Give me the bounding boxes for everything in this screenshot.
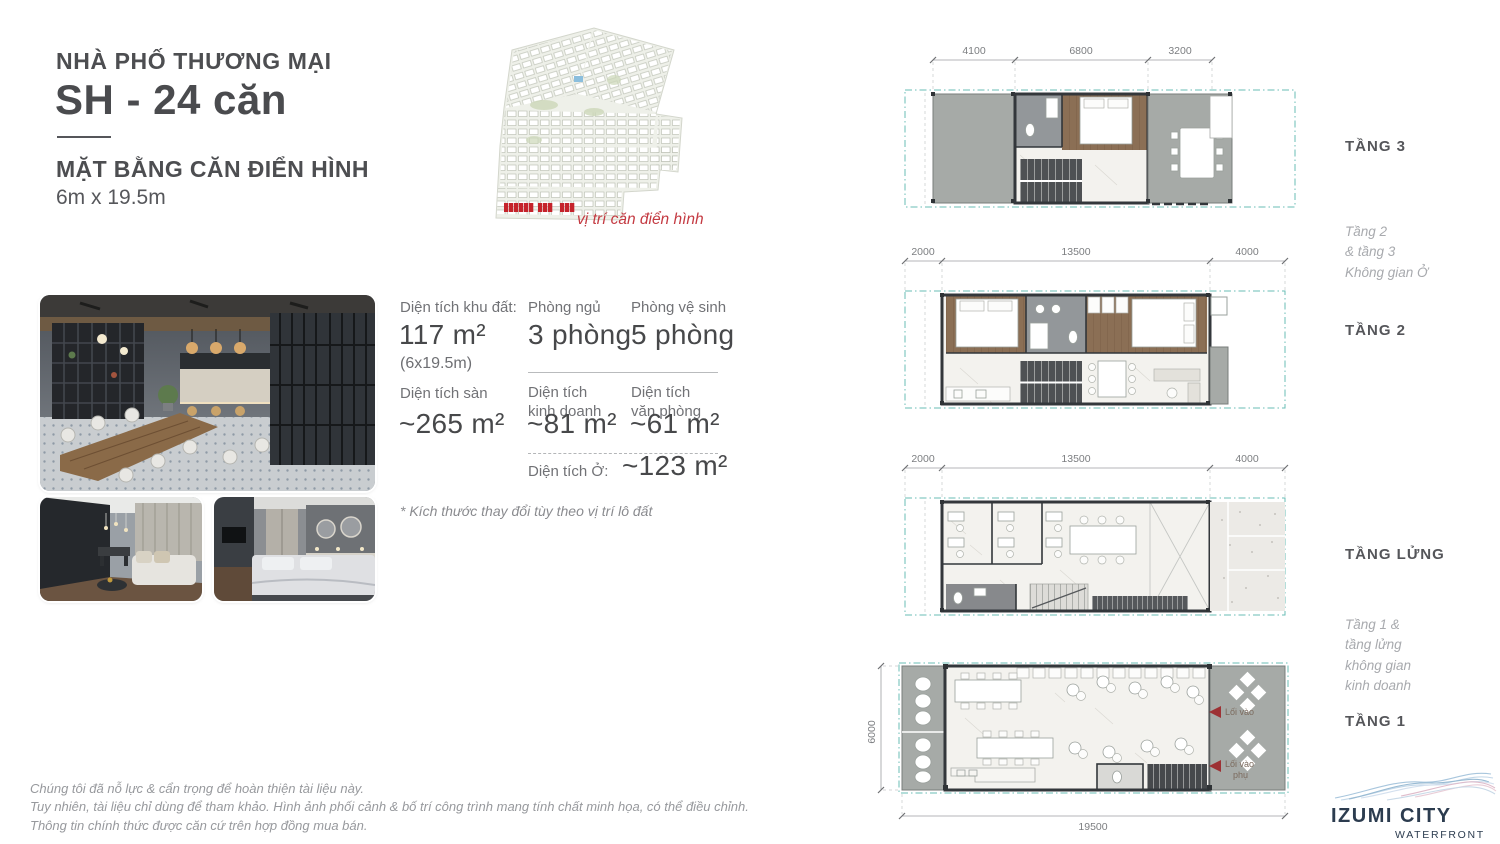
dim-label: 6000: [866, 720, 878, 744]
dim-label: 6800: [1069, 45, 1093, 57]
logo-name: IZUMI CITY: [1331, 805, 1497, 828]
footer-disclaimer: Chúng tôi đã nỗ lực & cẩn trọng để hoàn …: [30, 780, 749, 835]
stats-divider: [528, 372, 718, 373]
dim-label: 19500: [1078, 821, 1107, 833]
floor-note-upper: Tầng 2 & tầng 3 Không gian Ở: [1345, 222, 1428, 283]
dim-label: 2000: [911, 453, 935, 465]
logo-wave-icon: [1331, 758, 1497, 804]
dim-label: 13500: [1061, 246, 1090, 258]
floor-label-tang-2: TẦNG 2: [1345, 322, 1406, 339]
living-area-value: ~123 m²: [622, 450, 728, 482]
floor-plan-tang-1: 6000 19500: [865, 648, 1325, 844]
dimension-note: * Kích thước thay đổi tùy theo vị trí lô…: [400, 503, 652, 519]
land-area-sub: (6x19.5m): [400, 355, 472, 373]
izumi-city-logo: IZUMI CITY WATERFRONT COMMUNITY: [1331, 758, 1497, 844]
land-area-label: Diện tích khu đất:: [400, 299, 517, 316]
bathrooms-value: 5 phòng: [631, 319, 734, 351]
floor-label-tang-1: TẦNG 1: [1345, 713, 1406, 730]
dim-label: 13500: [1061, 453, 1090, 465]
site-plan-map: [474, 20, 726, 232]
interior-photo-living: [40, 497, 202, 601]
business-area-value: ~81 m²: [527, 408, 617, 440]
interior-photo-cafe: [40, 295, 375, 491]
footer-line-3: Thông tin chính thức được căn cứ trên hợ…: [30, 817, 749, 835]
dim-label: 4100: [962, 45, 986, 57]
entrance-side-label-2: phụ: [1233, 770, 1248, 780]
bedrooms-value: 3 phòng: [528, 319, 631, 351]
footer-line-1: Chúng tôi đã nỗ lực & cẩn trọng để hoàn …: [30, 780, 749, 798]
bathrooms-label: Phòng vệ sinh: [631, 299, 726, 316]
interior-photo-bedroom: [214, 497, 375, 601]
plan-size-label: 6m x 19.5m: [56, 186, 166, 210]
office-area-value: ~61 m²: [630, 408, 720, 440]
title-rule: [57, 136, 111, 138]
category-label: NHÀ PHỐ THƯƠNG MẠI: [56, 48, 332, 75]
highlighted-sh-blocks: [504, 203, 574, 212]
siteplan-caption: vị trí căn điển hình: [577, 211, 704, 229]
floor-note-lower: Tầng 1 & tầng lửng không gian kinh doanh: [1345, 615, 1411, 696]
dim-label: 3200: [1168, 45, 1192, 57]
page-title: SH - 24 căn: [55, 76, 287, 124]
floor-area-label: Diện tích sàn: [400, 385, 488, 402]
dim-label: 2000: [911, 246, 935, 258]
floor-label-tang-lung: TẦNG LỬNG: [1345, 546, 1445, 563]
floor-plan-tang-lung: 2000 13500 4000: [880, 450, 1320, 655]
entrance-main-label: Lối vào: [1225, 707, 1254, 717]
entrance-side-label-1: Lối vào: [1225, 759, 1254, 769]
plan-type-label: MẶT BẰNG CĂN ĐIỂN HÌNH: [56, 156, 369, 183]
living-area-label: Diện tích Ở:: [528, 463, 608, 480]
floor-plan-tang-3: 4100 6800 3200: [880, 40, 1320, 240]
floor-label-tang-3: TẦNG 3: [1345, 138, 1406, 155]
brochure-page: NHÀ PHỐ THƯƠNG MẠI SH - 24 căn MẶT BẰNG …: [0, 0, 1500, 844]
floor-plan-tang-2: 2000 13500 4000: [880, 243, 1320, 448]
dim-label: 4000: [1235, 246, 1259, 258]
dim-label: 4000: [1235, 453, 1259, 465]
footer-line-2: Tuy nhiên, tài liệu chỉ dùng để tham khả…: [30, 798, 749, 816]
bedrooms-label: Phòng ngủ: [528, 299, 601, 316]
logo-tagline-1: WATERFRONT: [1331, 828, 1497, 843]
floor-area-value: ~265 m²: [399, 408, 505, 440]
land-area-value: 117 m²: [399, 319, 486, 351]
